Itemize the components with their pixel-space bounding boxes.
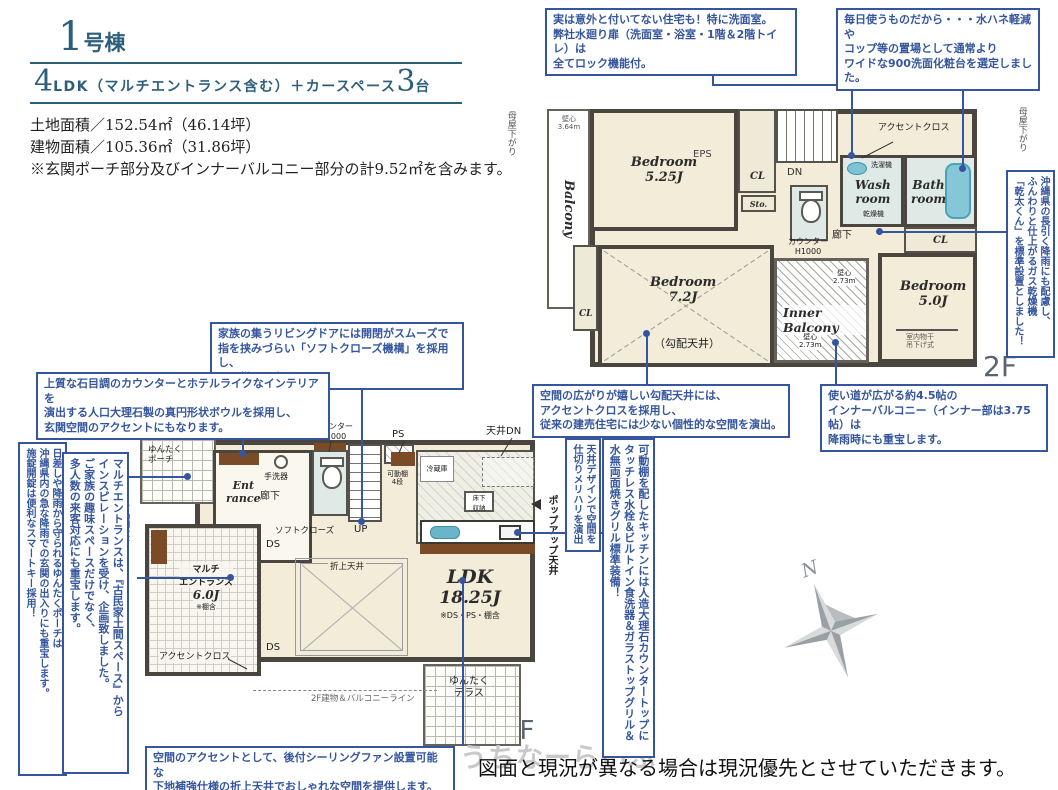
coffered-ceiling-label: 折上天井 <box>328 562 366 572</box>
room-inner-balcony: Inner Balcony 壁心 2.73m 壁心 2.73m <box>774 258 869 363</box>
room-bedroom-7-2: Bedroom 7.2J （勾配天井） <box>598 245 774 367</box>
yuntaku-terrace-label: ゆんたく テラス <box>449 676 489 700</box>
hallway-2f-label: 廊下 <box>832 230 852 242</box>
hallway-1f-label: 廊下 <box>260 491 280 503</box>
connector-fan-dot <box>459 577 466 584</box>
ds-label-2: DS <box>266 642 280 654</box>
balcony-line-dashed <box>253 690 437 691</box>
balcony-dimension: 壁心 3.64m <box>551 115 587 132</box>
spec-tail: 台 <box>415 79 429 95</box>
bedroom-5-25-label: Bedroom 5.25J <box>631 155 697 185</box>
callout-ceiling-design: 天井デザインで空間を 仕切りメリハリを演出 <box>565 438 601 552</box>
callout-kitchen: 可動棚を配したキッチンには人造大理石カウンタートップに タッチレス水栓＆ビルトイ… <box>602 438 655 758</box>
connector-door-dot <box>358 518 365 525</box>
connector-fan-v <box>462 580 464 746</box>
bathroom-label: Bath room <box>911 178 946 206</box>
popup-ceiling-label: ポップアップ天井 <box>545 490 557 580</box>
yuntaku-porch-label: ゆんたく ポーチ <box>148 445 182 465</box>
room-yuntaku-porch: ゆんたく ポーチ <box>140 438 216 504</box>
connector-multi-dot <box>227 574 234 581</box>
building-number: 1 <box>58 14 83 60</box>
ldk-labels: LDK 18.25J ※DS・PS・棚含 <box>410 566 530 621</box>
floor-storage: 床下 収納 <box>464 491 494 512</box>
connector-kitchen-dot <box>514 529 521 536</box>
spec-car-count: 3 <box>396 64 415 99</box>
cl-bath-label: CL <box>933 235 948 246</box>
accent-cross-1f-label: アクセントクロス <box>159 652 231 663</box>
connector-lock-dot <box>848 152 855 159</box>
ib-dimension-1: 壁心 2.73m <box>833 269 855 286</box>
connector-porch-dot <box>184 473 191 480</box>
room-cl-top-2f: CL <box>738 109 776 193</box>
room-yuntaku-terrace: ゆんたく テラス <box>423 664 521 746</box>
bedroom-7-2-label: Bedroom 7.2J <box>650 275 716 305</box>
compass-star <box>772 567 890 694</box>
ds-label-1: DS <box>266 539 280 551</box>
connector-door-v <box>361 390 363 521</box>
connector-dryer-dot <box>876 228 883 235</box>
connector-multi-h <box>137 577 230 579</box>
hand-basin-icon <box>274 455 288 469</box>
hand-basin-label: 手洗器 <box>264 472 288 482</box>
callout-multi-entrance: マルチエントランスは、『古民家土間スペース』から インスピレーションを受け、企画… <box>62 452 129 774</box>
disclaimer-text: 図面と現況が異なる場合は現況優先とさせていただきます。 <box>478 752 1016 781</box>
inner-balcony-label: Inner Balcony <box>782 305 866 335</box>
room-washroom: 洗濯機 Wash room 乾燥機 <box>840 155 904 227</box>
counter-2f-label: カウンター H1000 <box>783 237 833 256</box>
connector-slope-dot <box>643 330 650 337</box>
cl-bedroom-7-2-label: CL <box>579 309 593 319</box>
room-toilet-2f <box>790 185 828 241</box>
room-bathroom: Bath room <box>904 155 977 227</box>
storage-label: Sto. <box>750 199 767 209</box>
kitchen-shelf-icon <box>391 452 415 466</box>
connector-lock-v2 <box>851 84 853 156</box>
multi-entrance-labels: マルチ エントランス 6.0J ※棚含 <box>163 562 249 612</box>
ldk-size: 18.25J <box>439 588 500 608</box>
building-title: 1号棟 <box>58 14 125 60</box>
room-multi-entrance: マルチ エントランス 6.0J ※棚含 アクセントクロス <box>145 524 261 676</box>
room-bedroom-5-0: Bedroom 5.0J 室内物干 吊下げ式 <box>878 253 977 363</box>
connector-slope-v <box>646 334 648 384</box>
kitchen-shelf-label: 可動棚 4段 <box>387 470 408 487</box>
layout-spec: 4LDK（マルチエントランス含む）＋カースペース3台 <box>34 64 429 99</box>
compass-rose: N <box>772 548 890 703</box>
stairs-2f <box>776 109 838 163</box>
moya-sagari-right: 母屋下がり <box>1016 94 1027 164</box>
dryer-label: 乾燥機 <box>863 210 884 218</box>
callout-inner-balcony: 使い道が広がる約4.5帖の インナーバルコニー（インナー部は3.75帖）は 降雨… <box>820 384 1048 452</box>
slope-ceiling-label: （勾配天井） <box>654 337 720 350</box>
dn-label: DN <box>787 167 802 179</box>
room-bedroom-5-25: Bedroom 5.25J <box>590 109 738 231</box>
ps-label: PS <box>392 429 404 441</box>
ldk-name: LDK <box>447 566 493 588</box>
entrance-label: Ent rance <box>226 479 261 505</box>
connector-dryer-h <box>880 231 1008 233</box>
callout-slope-ceiling: 空間の広がりが嬉しい勾配天井には、 アクセントクロスを採用し、 従来の建売住宅に… <box>532 384 790 438</box>
toilet-counter-icon <box>314 443 346 450</box>
connector-bowl-dot <box>239 450 246 457</box>
coffered-ceiling-lines <box>296 559 409 657</box>
callout-ceiling-fan: 空間のアクセントとして、後付シーリングファン設置可能な 下地補強仕様の折上天井で… <box>145 746 455 790</box>
spec-text: LDK（マルチエントランス含む）＋カースペース <box>53 79 396 95</box>
compass-north-letter: N <box>797 556 822 583</box>
ldk-note: ※DS・PS・棚含 <box>440 610 500 621</box>
callout-gas-dryer: 沖縄県の長引く降雨にも配慮し、 ふんわりと仕上がるガス乾燥機 「乾太くん」を標準… <box>1006 170 1055 358</box>
multi-entrance-name: マルチ エントランス <box>179 562 233 588</box>
coffered-ceiling: 折上天井 <box>295 558 408 656</box>
sink-icon <box>847 162 867 175</box>
callout-bowl: 上質な石目調のカウンターとホテルライクなインテリアを 演出する人口大理石製の真円… <box>36 372 330 440</box>
callout-porch: 日差しや降雨から守られるゆんたくポーチは 沖縄県内の急な降雨での玄関の出入りにも… <box>18 442 67 776</box>
stairs-1f <box>348 444 382 522</box>
floor-storage-label: 床下 収納 <box>473 492 486 512</box>
building-area: 建物面積／105.36㎡（31.86坪） <box>30 136 260 157</box>
hanger-bar-icon <box>896 329 958 331</box>
multi-entrance-size: 6.0J <box>193 588 220 602</box>
ceiling-dn-label: 天井DN <box>486 426 521 438</box>
building-suffix: 号棟 <box>83 31 125 55</box>
eps-label: EPS <box>693 149 712 161</box>
indoor-hanger-label: 室内物干 吊下げ式 <box>906 333 934 350</box>
fridge-label: 冷蔵庫 <box>427 464 448 474</box>
balcony-line-label: 2F建物＆バルコニーライン <box>311 694 415 704</box>
washroom-label: Wash room <box>855 178 891 206</box>
bathtub-icon <box>945 163 971 219</box>
connector-vanity-dot <box>959 165 966 172</box>
moya-sagari-left: 母屋下がり <box>505 98 516 168</box>
room-storage-2f: Sto. <box>741 195 776 212</box>
ib-dimension-2: 壁心 2.73m <box>799 333 821 350</box>
accent-cross-2f-label: アクセントクロス <box>878 123 950 134</box>
room-cl-bedroom-7-2: CL <box>573 245 598 331</box>
land-area: 土地面積／152.54㎡（46.14坪） <box>30 114 260 135</box>
washer-label: 洗濯機 <box>871 161 892 169</box>
connector-lock-h <box>712 84 853 86</box>
connector-ib-dot <box>832 339 839 346</box>
balcony-label: Balcony <box>561 180 576 238</box>
soft-close-label: ソフトクローズ <box>275 526 334 536</box>
connector-ib-v <box>835 342 837 384</box>
cl-top-label: CL <box>750 171 765 182</box>
multi-entrance-shelf-icon <box>151 530 167 564</box>
callout-vanity: 毎日使うものだから・・・水ハネ軽減や コップ等の置場として通常より ワイドな90… <box>836 8 1040 91</box>
up-label: UP <box>354 524 367 536</box>
multi-entrance-note: ※棚含 <box>196 602 216 612</box>
fridge-space: 冷蔵庫 <box>420 456 454 482</box>
plan-2f: Balcony 壁心 3.64m Bedroom 5.25J CL EPS DN… <box>545 95 1005 395</box>
header-divider-bottom <box>30 102 462 104</box>
area-note: ※玄関ポーチ部分及びインナーバルコニー部分の計9.52㎡を含みます。 <box>30 158 511 179</box>
room-toilet-1f <box>312 450 348 516</box>
bedroom-5-0-label: Bedroom 5.0J <box>900 279 966 309</box>
popup-ceiling-area <box>482 457 534 487</box>
kitchen-cabinet-icon <box>420 544 535 554</box>
toilet-1f-icon <box>322 465 342 489</box>
spec-ldk-count: 4 <box>34 64 53 99</box>
plan-1f: ゆんたく ポーチ Ent rance 手洗器 廊下 UP 可動棚 4段 冷蔵庫 <box>135 438 547 750</box>
toilet-icon <box>801 199 821 223</box>
kitchen-sink-icon <box>430 526 460 539</box>
floor-plan-flyer: 1号棟 4LDK（マルチエントランス含む）＋カースペース3台 土地面積／152.… <box>0 0 1058 790</box>
callout-lock: 実は意外と付いてない住宅も！特に洗面室。 弊社水廻り扉（洗面室・浴室・1階＆2階… <box>545 8 797 76</box>
